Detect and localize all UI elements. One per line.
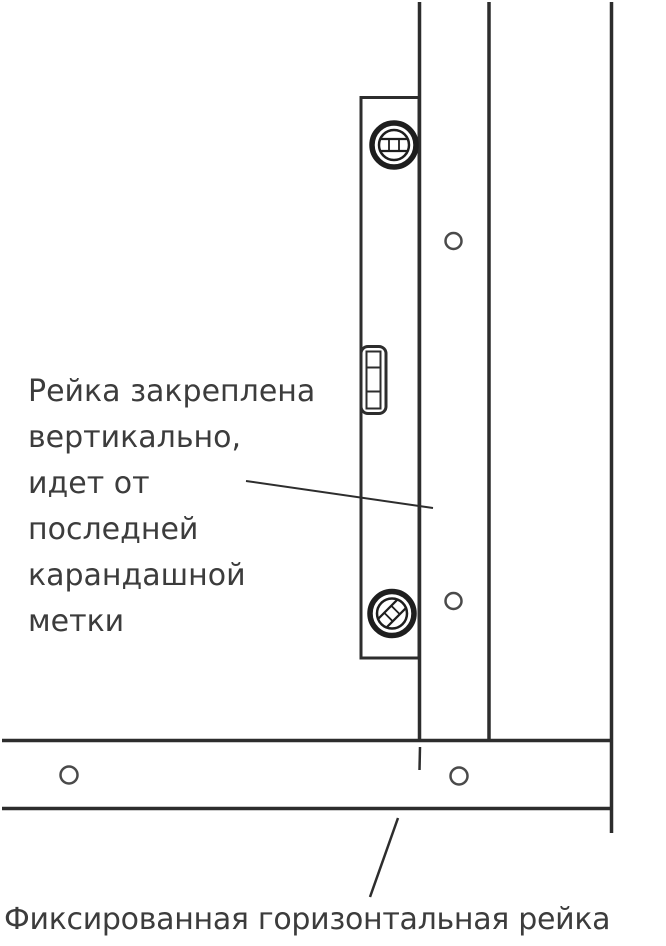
- screw-hole-icon: [451, 768, 468, 785]
- leader-line-horizontal-rail: [370, 818, 398, 897]
- screw-hole-icon: [61, 767, 78, 784]
- caption-line: Рейка закреплена: [28, 369, 315, 415]
- caption-line: метки: [28, 599, 315, 645]
- caption-horizontal-rail: Фиксированная горизонтальная рейка: [4, 901, 666, 939]
- caption-line: последней: [28, 507, 315, 553]
- diagram-page: Рейка закреплена вертикально, идет от по…: [0, 0, 666, 946]
- caption-line: вертикально,: [28, 415, 315, 461]
- pencil-mark-icon: [420, 747, 421, 770]
- caption-line: идет от: [28, 461, 315, 507]
- screw-hole-icon: [446, 593, 462, 609]
- screw-hole-icon: [446, 233, 462, 249]
- caption-vertical-rail: Рейка закреплена вертикально, идет от по…: [28, 369, 315, 645]
- caption-line: карандашной: [28, 553, 315, 599]
- level-vial-icon: [361, 347, 386, 414]
